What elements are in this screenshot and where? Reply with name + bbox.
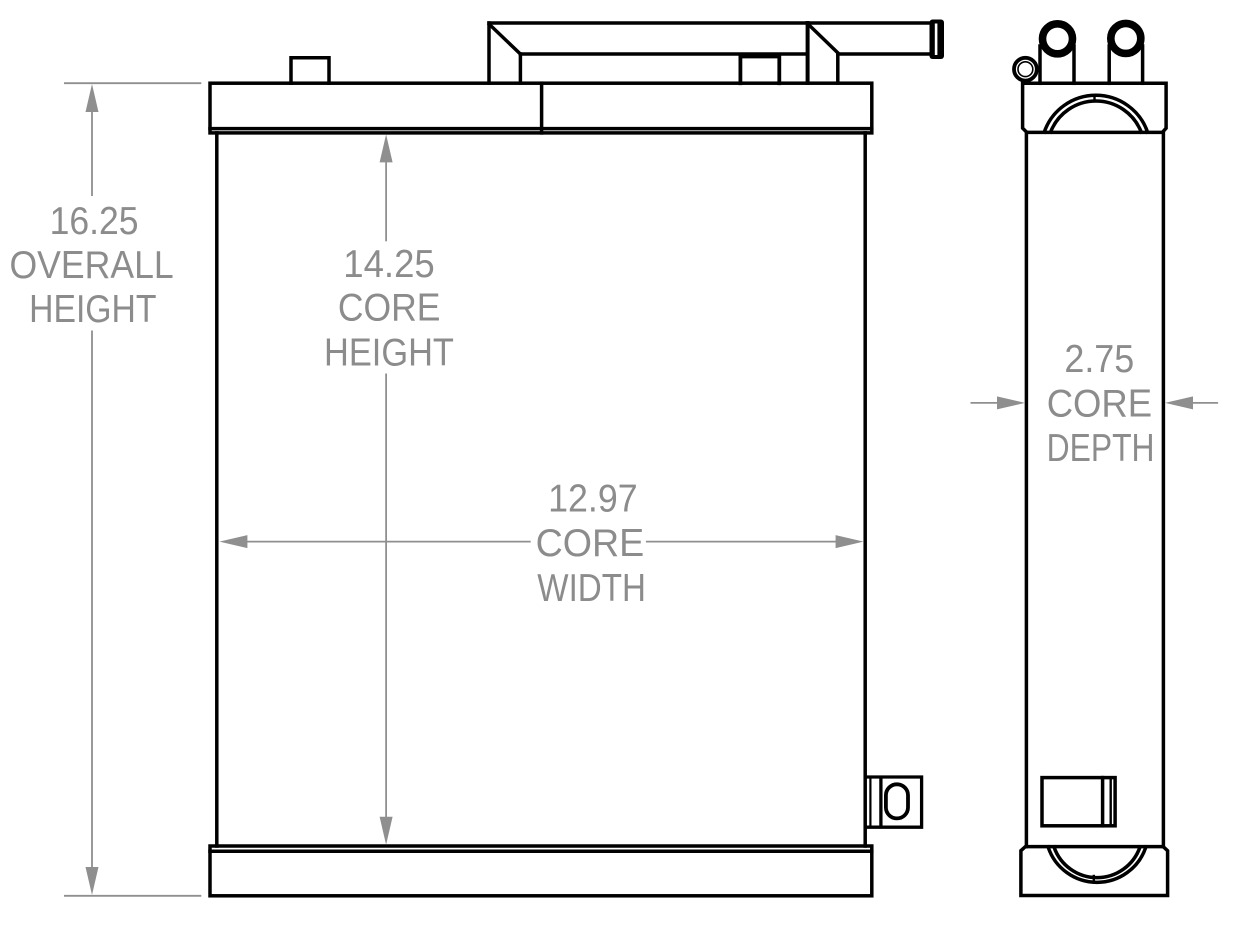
svg-text:2.75: 2.75 (1064, 338, 1134, 381)
svg-text:OVERALL: OVERALL (9, 244, 173, 287)
svg-text:CORE: CORE (338, 287, 441, 330)
svg-text:CORE: CORE (1047, 382, 1152, 425)
svg-text:HEIGHT: HEIGHT (29, 288, 156, 331)
svg-text:CORE: CORE (536, 522, 645, 565)
svg-text:14.25: 14.25 (343, 243, 435, 286)
svg-text:HEIGHT: HEIGHT (324, 332, 454, 375)
svg-text:12.97: 12.97 (548, 477, 638, 520)
svg-text:16.25: 16.25 (50, 200, 139, 243)
svg-text:WIDTH: WIDTH (537, 567, 646, 610)
svg-text:DEPTH: DEPTH (1047, 427, 1155, 470)
